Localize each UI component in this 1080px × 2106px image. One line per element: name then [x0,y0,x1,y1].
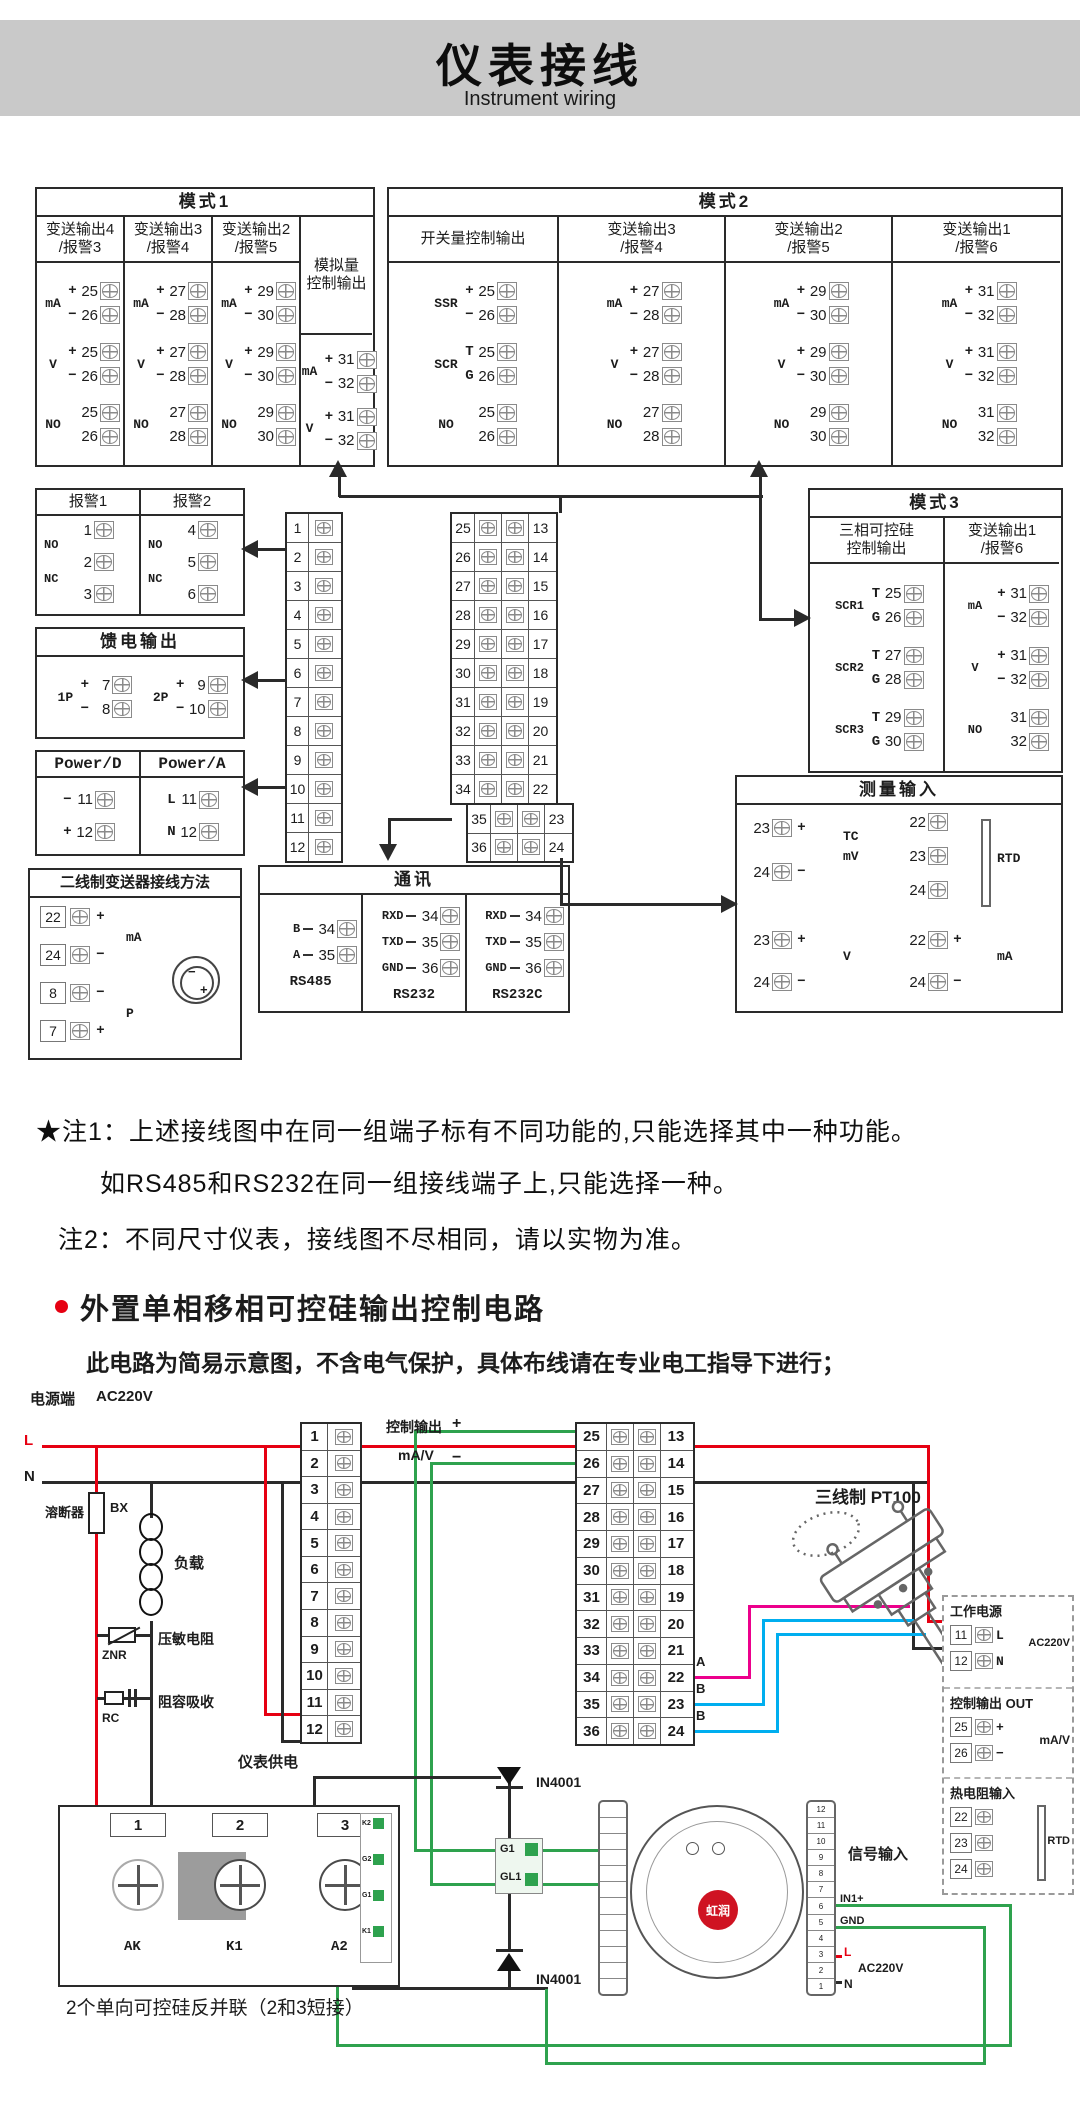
screw-terminal-cell [607,1531,634,1557]
mode-title: 模式3 [810,490,1061,518]
side-pin-row: K1 [362,1926,384,1937]
terminal-number-cell: 13 [661,1424,691,1450]
nc-contact-label: NC [44,572,58,586]
terminal: 25 [79,343,120,361]
terminal-number-cell: 32 [577,1611,607,1637]
screw-terminal-icon [208,676,228,694]
rc-label: 阻容吸收 [158,1692,214,1712]
terminal-number: 25 [79,404,98,421]
port-group-label: SCR1 [830,599,870,613]
polarity-label: + [323,409,336,425]
terminal-number-cell: 12 [287,833,309,861]
terminal-number: 31 [1008,647,1027,664]
terminal-number: 25 [79,283,98,300]
terminal-number: 6 [177,586,196,603]
wire-segment [258,786,286,789]
terminal-number-cell: 35 [468,805,491,833]
terminal-number-cell: 27 [577,1478,607,1504]
screw-terminal-icon [495,839,513,855]
wire-a-label: A [696,1654,705,1669]
screw-terminal-cell [502,775,529,803]
wire-segment [695,1730,779,1733]
port-group-label: 2P [148,690,174,705]
scr-terminal-label: K1 [226,1939,243,1955]
terminal-number-cell: 22 [661,1665,691,1691]
terminal-number-cell: 14 [661,1451,691,1477]
terminal-strip-35-36: 35233624 [466,803,574,863]
port-group: V+31−32 [955,645,1049,690]
terminal-row: −26 [463,305,517,326]
screw-terminal-cell [491,834,518,862]
wire-segment [748,1605,751,1679]
screw-terminal-icon [315,665,333,681]
screw-terminal-cell [309,630,339,658]
flow-arrow [750,460,768,477]
terminal-number-cell: 9 [287,746,309,774]
column-header: 变送输出2/报警5 [213,217,299,263]
screw-terminal-icon [497,404,517,422]
port-group-label: NO [40,417,66,432]
screw-terminal-icon [506,781,524,797]
device-terminal-cell [600,1898,626,1914]
screw-terminal-cell [634,1638,661,1664]
terminal-number-cell: 6 [302,1557,328,1583]
screw-terminal-icon [506,665,524,681]
screw-terminal-icon [506,578,524,594]
terminal: 12 [74,823,115,841]
screw-terminal-icon [829,404,849,422]
terminal: 34 [523,907,564,925]
terminal-number: 27 [167,404,186,421]
port-rows: +25−26 [66,281,120,326]
column-header: 变送输出3/报警4 [125,217,211,263]
polarity-label: + [628,283,641,299]
mode-columns: 变送输出4/报警3mA+25−26V+25−26NO2526变送输出3/报警4m… [37,217,373,465]
polarity-label: − [795,307,808,323]
polarity-label: + [463,283,476,299]
polarity-label: + [242,283,255,299]
port-rows: +31−32 [995,583,1049,628]
terminal-number: 31 [1008,709,1027,726]
terminal: 36 [523,959,564,977]
port-rows: 2930 [795,402,849,447]
terminal-row: 32 [963,426,1017,447]
terminal-row: 27 [628,402,682,423]
screw-terminal-icon [544,959,564,977]
terminal-row: −32 [963,366,1017,387]
screw-terminal-cell [309,804,339,832]
screw-terminal-icon [315,723,333,739]
terminal-number-cell: 30 [452,659,475,687]
port-groups: mA+29−30V+29−30NO2930 [726,263,891,465]
terminal: 30 [255,428,296,446]
screw-terminal-icon [928,931,948,949]
terminal: 27 [167,404,208,422]
port-group-label: mA [216,296,242,311]
terminal-number: 34 [316,921,335,938]
polarity-label: N [165,824,178,840]
terminal: 34 [419,907,460,925]
screw-terminal-icon [315,781,333,797]
header-line: /报警4 [559,239,724,257]
screw-terminal-icon [208,700,228,718]
rc-code: RC [102,1711,119,1725]
terminal-row: 27 [154,402,208,423]
terminal-strip-1-12: 123456789101112 [285,512,343,863]
transmitter-inner [180,966,214,1000]
flow-arrow [241,671,258,689]
terminal: 28 [883,671,924,689]
wire-dash [510,915,520,917]
terminal-number: 4 [177,522,196,539]
terminal-number: 32 [336,375,355,392]
port-rows: +27−28 [628,281,682,326]
screw-terminal-cell [328,1504,359,1530]
polarity-label: − [795,974,808,990]
mode-column: 变送输出1/报警6mA+31−32V+31−32NO3132 [945,518,1059,771]
terminal-number-cell: 27 [452,572,475,600]
gnd-label: GND [840,1915,864,1927]
polarity-label: G [870,610,883,626]
screw-terminal-icon [638,1509,656,1525]
strip-row: 2513 [577,1424,693,1451]
terminal-number: 27 [167,344,186,361]
wire-dash [510,941,520,943]
terminal-row: +25 [463,281,517,302]
terminal: 31 [976,404,1017,422]
terminal-row: +31 [963,342,1017,363]
terminal-number-cell: 20 [529,717,552,745]
terminal-number-cell: 23 [661,1692,691,1718]
screw-terminal-icon [904,609,924,627]
screw-terminal-icon [357,351,377,369]
screw-terminal-icon [335,1641,353,1657]
strip-row: 3 [302,1477,360,1504]
port-group: V+29−30 [769,342,849,387]
screw-terminal-icon [975,1835,993,1851]
wire-segment [95,1534,98,1808]
terminal-number: 23 [751,932,770,949]
port-rows: 2526 [66,402,120,447]
terminal: 32 [336,375,377,393]
terminal-row: −26 [66,305,120,326]
port-groups: SSR+25−26SCRT25G26NO2526 [389,263,557,465]
port-groups: mA+27−28V+27−28NO2728 [559,263,724,465]
terminal: 26 [476,367,517,385]
terminal-row: +7 [78,675,132,696]
strip-row: 2614 [577,1451,693,1478]
strip-row: 4 [287,601,341,630]
port-group-label: V [769,357,795,372]
screw-terminal-icon [94,553,114,571]
terminal-number: 25 [883,585,902,602]
terminal: 27 [883,647,924,665]
terminal-number: 11 [178,791,197,808]
screw-terminal-cell [607,1504,634,1530]
strip-row: 2614 [452,543,556,572]
comm-row: RXD34 [367,904,460,929]
header-line: /报警5 [213,239,299,257]
screw-terminal-icon [276,367,296,385]
column-header: 模拟量控制输出 [301,217,372,335]
device-right-terminals: 121110987654321 [806,1800,836,1996]
terminal-row: 24− [751,973,808,991]
polarity-label: + [795,932,808,948]
screw-terminal-icon [188,367,208,385]
terminal-number: 30 [883,733,902,750]
terminal: 36 [419,959,460,977]
port-group-label: mA [128,296,154,311]
screw-terminal-icon [638,1696,656,1712]
screw-terminal-large [112,1859,164,1911]
strip-row: 3422 [452,775,556,803]
wire-segment [150,1621,153,1808]
scr-terminal-label: AK [124,1939,141,1955]
mode-column: 三相可控硅控制输出SCR1T25G26SCR2T27G28SCR3T29G30 [810,518,945,771]
strip-row: 3523 [468,805,572,834]
screw-terminal-large [214,1859,266,1911]
screw-terminal-icon [997,428,1017,446]
wire-segment [762,1619,765,1706]
terminal-number: 28 [167,428,186,445]
terminal-row: −30 [795,305,849,326]
terminal-number-cell: 24 [661,1718,691,1744]
port-group: NO2930 [769,402,849,447]
header-line: 变送输出1 [945,522,1059,540]
screw-terminal-icon [357,432,377,450]
screw-terminal-icon [100,306,120,324]
polarity-label: − [963,307,976,323]
wire-segment [560,858,563,906]
screw-terminal-icon [276,428,296,446]
line-label: N [996,1654,1004,1669]
gate-connector: G1 GL1 [495,1838,543,1894]
device-terminal-cell: 1 [808,1979,834,1994]
column-header: 变送输出3/报警4 [559,217,724,263]
screw-terminal-cell [328,1663,359,1689]
mode-column: 开关量控制输出SSR+25−26SCRT25G26NO2526 [389,217,559,465]
polarity-label: G [870,672,883,688]
alarm-header: 报警1报警2 [37,490,243,516]
terminal: 35 [316,946,357,964]
terminal: 1 [73,521,114,539]
meter-supply-label: 仪表供电 [238,1751,298,1772]
terminal-number: 32 [336,432,355,449]
gl1-pin [525,1873,538,1886]
screw-terminal-icon [335,1615,353,1631]
screw-terminal-icon [276,404,296,422]
flow-arrow [329,460,347,477]
terminal-row: −32 [995,669,1049,690]
polarity-label: − [795,368,808,384]
wire-segment [388,818,452,821]
screw-terminal-icon [662,306,682,324]
terminal: 32 [976,306,1017,324]
screw-terminal-icon [638,1429,656,1445]
terminal-number-cell: 13 [529,514,552,542]
polarity-label: − [61,792,74,808]
screw-terminal-cell [634,1585,661,1611]
ctrl-plus: + [452,1415,461,1433]
line-l-label: L [24,1432,33,1449]
terminal-number-cell: 19 [661,1585,691,1611]
screw-terminal-cell [634,1424,661,1450]
terminal-row: +27 [154,342,208,363]
screw-terminal-cell [475,601,502,629]
terminal: 9 [187,676,228,694]
port-group: mA+27−28 [602,281,682,326]
terminal-number: 28 [641,428,660,445]
screw-terminal-icon [479,694,497,710]
terminal: 28 [641,306,682,324]
screw-terminal-icon [662,428,682,446]
comm-signal-label: TXD [471,935,507,949]
header-line: 三相可控硅 [810,522,943,540]
terminal: 31 [336,408,377,426]
terminal: 11 [74,791,115,809]
polarity-label: − [94,947,107,963]
screw-terminal-icon [611,1616,629,1632]
note-2: 注2：不同尺寸仪表，接线图不尽相同，请以实物为准。 [58,1220,697,1256]
device-terminal-cell [600,1834,626,1850]
port-rows: +29−30 [795,281,849,326]
screw-terminal-icon [638,1643,656,1659]
strip-row: 3220 [577,1611,693,1638]
mode-columns: 三相可控硅控制输出SCR1T25G26SCR2T27G28SCR3T29G30变… [810,518,1061,771]
flow-arrow [241,540,258,558]
polarity-label: − [963,368,976,384]
dev-l-label: L [844,1945,851,1959]
terminal: 32 [1008,609,1049,627]
terminal-row: G26 [870,607,924,628]
terminal-row: N12 [165,822,219,843]
terminal: 23 [751,819,792,837]
side-pin-label: G1 [362,1892,371,1899]
port-group: SCR2T27G28 [830,645,924,690]
terminal-row: −11 [61,789,115,810]
terminal-number: 28 [641,307,660,324]
polarity-label: + [154,283,167,299]
port-group-label: V [937,357,963,372]
section-heading: 外置单相移相可控硅输出控制电路 [80,1286,545,1328]
ctrl-mav: mA/V [398,1447,434,1463]
port-group-label: NO [955,723,995,737]
terminal-number: 31 [1008,585,1027,602]
side-pin-row: K2 [362,1818,384,1829]
screw-terminal-icon [1029,709,1049,727]
screw-terminal-icon [337,946,357,964]
screw-terminal-icon [315,636,333,652]
rtd-label: RTD [997,851,1020,866]
polarity-label: − [154,307,167,323]
strip-row: 3 [287,572,341,601]
screw-terminal-icon [335,1535,353,1551]
feed-title: 馈电输出 [37,629,243,657]
screw-terminal-cell [634,1478,661,1504]
title-band: 仪表接线 Instrument wiring [0,20,1080,116]
screw-terminal-icon [479,578,497,594]
port-group-label: 1P [52,690,78,705]
terminal-number: 29 [808,344,827,361]
terminal-row: 32 [995,731,1049,752]
comm-column: RXD34TXD35GND36RS232 [363,895,466,1011]
screw-terminal-icon [497,306,517,324]
varistor-label: 压敏电阻 [158,1629,214,1649]
screw-terminal-icon [904,647,924,665]
terminal-number-cell: 32 [452,717,475,745]
polarity-label: + [995,586,1008,602]
polarity-label: − [66,307,79,323]
terminal-number: 26 [476,368,495,385]
port-rows: +27−28 [154,281,208,326]
terminal: 35 [419,933,460,951]
mode-column: 变送输出3/报警4mA+27−28V+27−28NO2728 [559,217,726,465]
port-group-label: V [602,357,628,372]
wire-segment [695,1676,751,1679]
screw-terminal-icon [638,1723,656,1739]
terminal-number: 28 [883,671,902,688]
screw-terminal-icon [611,1589,629,1605]
port-group: 2P+9−10 [148,675,228,720]
screw-terminal-icon [611,1429,629,1445]
wire-segment [352,1987,548,1990]
device-terminal-cell [600,1963,626,1979]
terminal-number-cell: 36 [468,834,491,862]
screw-terminal-icon [94,585,114,603]
polarity-label: + [66,344,79,360]
screw-terminal-icon [904,709,924,727]
terminal-number-cell: 29 [452,630,475,658]
terminal: 32 [976,428,1017,446]
wire-segment [508,1886,511,1952]
screw-terminal-icon [638,1456,656,1472]
header-line: 控制输出 [810,540,943,558]
port-group: mA+29−30 [769,281,849,326]
rc-snubber-symbol [104,1691,124,1705]
terminal: 25 [79,282,120,300]
rtd-resistor-symbol [981,819,991,907]
wire-segment [983,1926,986,2065]
mode-column: 变送输出2/报警5mA+29−30V+29−30NO2930 [726,217,893,465]
terminal-number: 26 [79,368,98,385]
polarity-label: − [154,368,167,384]
screw-terminal-icon [611,1723,629,1739]
terminal: 6 [177,585,218,603]
terminal-number-cell: 34 [577,1665,607,1691]
terminal: 29 [255,404,296,422]
screw-terminal-cell [309,775,339,803]
strip-row: 6 [287,659,341,688]
terminal-number: 36 [419,960,438,977]
screw-terminal-icon [479,520,497,536]
no-contact-label: NO [44,538,58,552]
port-rows: +29−30 [242,342,296,387]
screw-terminal-icon [638,1589,656,1605]
terminal-number-cell: 3 [302,1477,328,1503]
polarity-label: + [154,344,167,360]
polarity-label: + [78,677,91,693]
comm-title: 通讯 [260,867,568,895]
terminal: 28 [167,428,208,446]
polarity-label: + [94,1023,107,1039]
terminal: 26 [476,306,517,324]
strip-row: 2 [302,1451,360,1478]
terminal-number-cell: 33 [452,746,475,774]
terminal-number: 26 [476,307,495,324]
terminal-number-cell: 5 [287,630,309,658]
terminal-row: +29 [795,342,849,363]
terminal-row: −30 [795,366,849,387]
